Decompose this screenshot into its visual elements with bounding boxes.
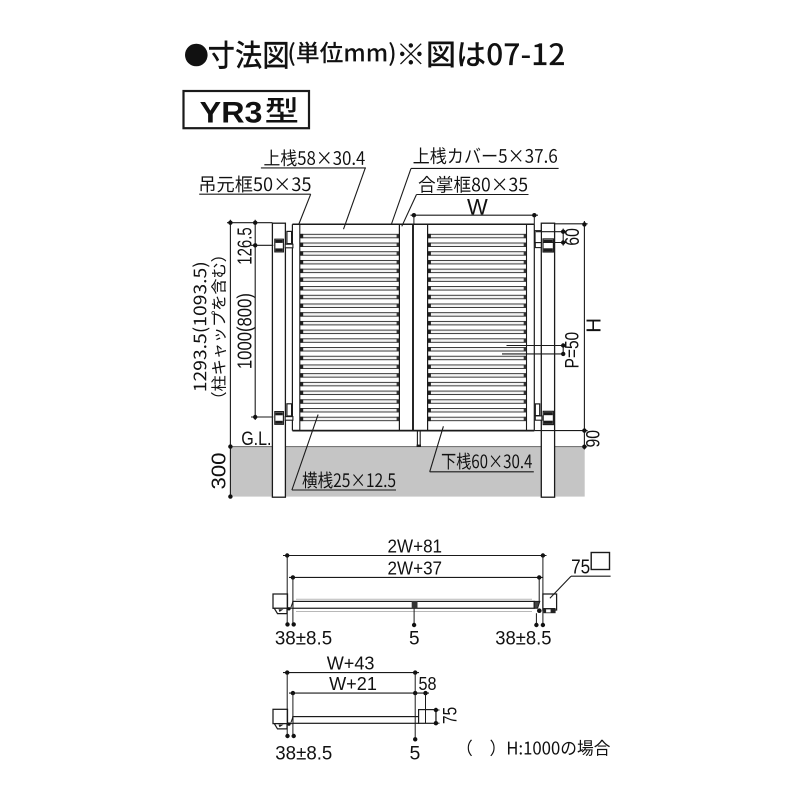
- svg-text:W+43: W+43: [327, 652, 375, 673]
- svg-text:P=50: P=50: [562, 332, 583, 369]
- svg-text:75: 75: [441, 707, 462, 724]
- svg-text:W+21: W+21: [329, 673, 377, 694]
- svg-text:1000(800): 1000(800): [234, 293, 256, 369]
- svg-text:38±8.5: 38±8.5: [275, 742, 332, 764]
- svg-text:75: 75: [571, 557, 590, 579]
- svg-text:2W+37: 2W+37: [388, 558, 443, 579]
- svg-text:YR3: YR3: [200, 96, 263, 129]
- svg-text:38±8.5: 38±8.5: [495, 628, 551, 649]
- svg-text:58: 58: [419, 674, 437, 694]
- svg-text:5: 5: [409, 742, 420, 764]
- svg-text:126.5: 126.5: [234, 227, 256, 264]
- svg-text:H: H: [582, 318, 605, 333]
- svg-text:W: W: [467, 195, 488, 220]
- svg-text:2W+81: 2W+81: [388, 536, 443, 557]
- svg-text:90: 90: [584, 430, 605, 448]
- svg-text:38±8.5: 38±8.5: [275, 628, 332, 649]
- svg-text:G.L.: G.L.: [241, 428, 271, 450]
- svg-text:60: 60: [562, 228, 584, 245]
- svg-text:5: 5: [409, 628, 420, 649]
- svg-text:300: 300: [209, 453, 231, 490]
